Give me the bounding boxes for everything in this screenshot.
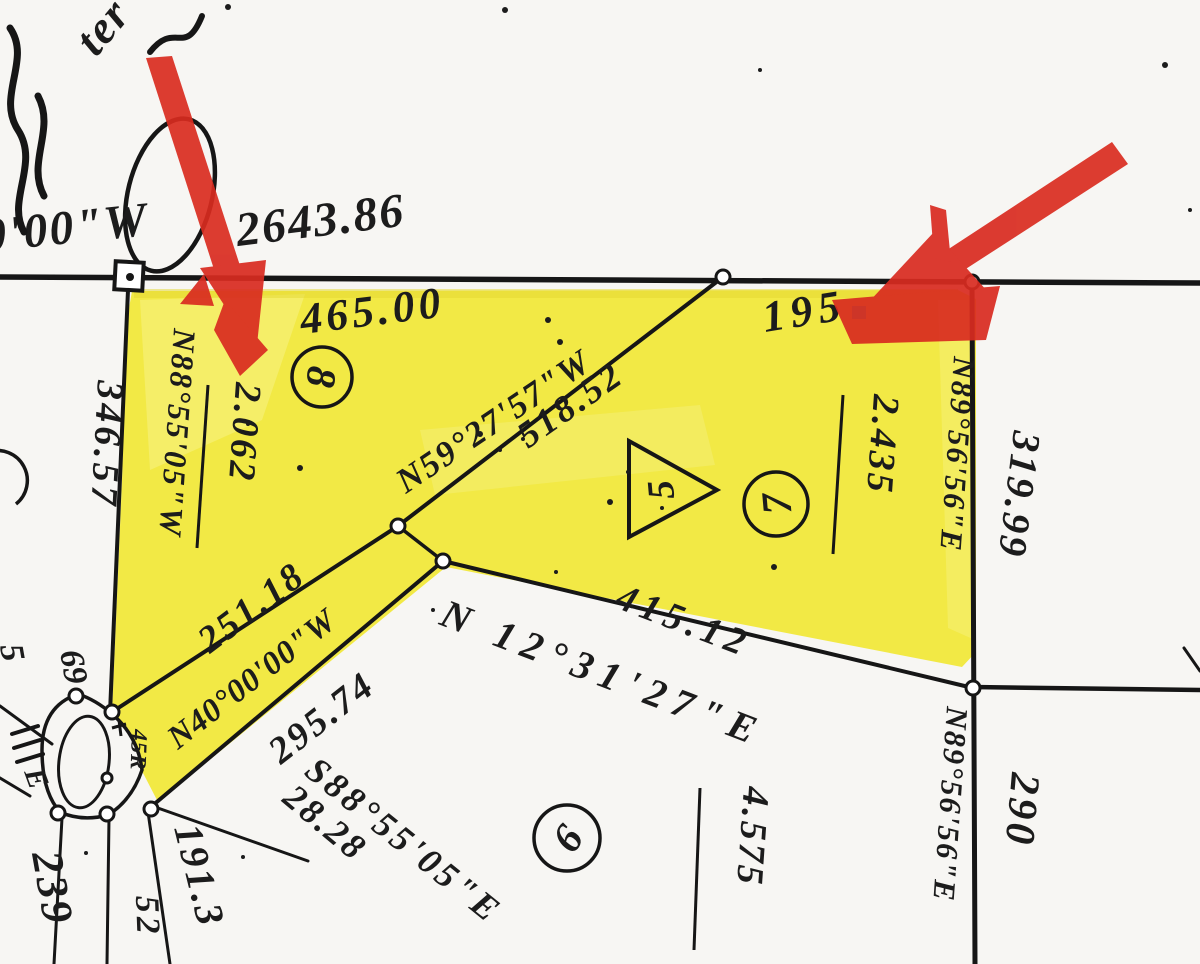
parcel5-number: 5 (640, 479, 683, 502)
road-hatch-marks (12, 726, 43, 762)
lot8-acreage-label: 2.062 (220, 380, 269, 484)
plat-map-scan: 8 7 6 5 0'00"W 2643.86 465.00 195 346.57… (0, 0, 1200, 964)
handwriting-squiggle (10, 28, 44, 232)
lot6-number: 6 (544, 817, 594, 861)
road-label-239: 239 (22, 846, 83, 929)
handwriting-swash (150, 16, 202, 52)
east-cross-line (972, 687, 1200, 690)
east-outside-distance-lower-label: 290 (996, 770, 1048, 850)
survey-node (105, 705, 119, 719)
section-line-north (0, 277, 1200, 283)
survey-node (716, 270, 730, 284)
handwriting-fragment: ter (65, 0, 141, 64)
red-arrow-right (832, 142, 1128, 344)
lot6-acreage-underline (694, 788, 700, 950)
road-label-5: 5 (0, 641, 32, 664)
survey-node (69, 689, 83, 703)
lot7-acreage-label: 2.435 (858, 392, 907, 496)
road-label-69: 69 (52, 647, 94, 687)
lot6-acreage-label: 4.575 (728, 784, 777, 888)
west-outside-distance-label: 346.57 (82, 379, 131, 511)
survey-node (966, 681, 980, 695)
section-corner-dot (126, 273, 134, 281)
plat-map-canvas: 8 7 6 5 0'00"W 2643.86 465.00 195 346.57… (0, 0, 1200, 964)
survey-node (102, 773, 112, 783)
survey-node (144, 802, 158, 816)
edge-tick-line (1184, 648, 1200, 671)
section-distance-label: 2643.86 (232, 184, 408, 257)
east-bearing-lower-label: N89°56'56"E (926, 705, 975, 904)
road-line-2 (107, 818, 109, 964)
survey-node (100, 807, 114, 821)
partial-lot-circle (0, 451, 27, 504)
road-label-191: 191.3 (165, 819, 234, 932)
survey-node (436, 554, 450, 568)
survey-node (51, 806, 65, 820)
cul-de-sac-radius-label: 45R (126, 728, 152, 771)
survey-node (391, 519, 405, 533)
road-label-52: 52 (128, 895, 166, 938)
east-outside-distance-upper-label: 319.99 (989, 428, 1049, 562)
